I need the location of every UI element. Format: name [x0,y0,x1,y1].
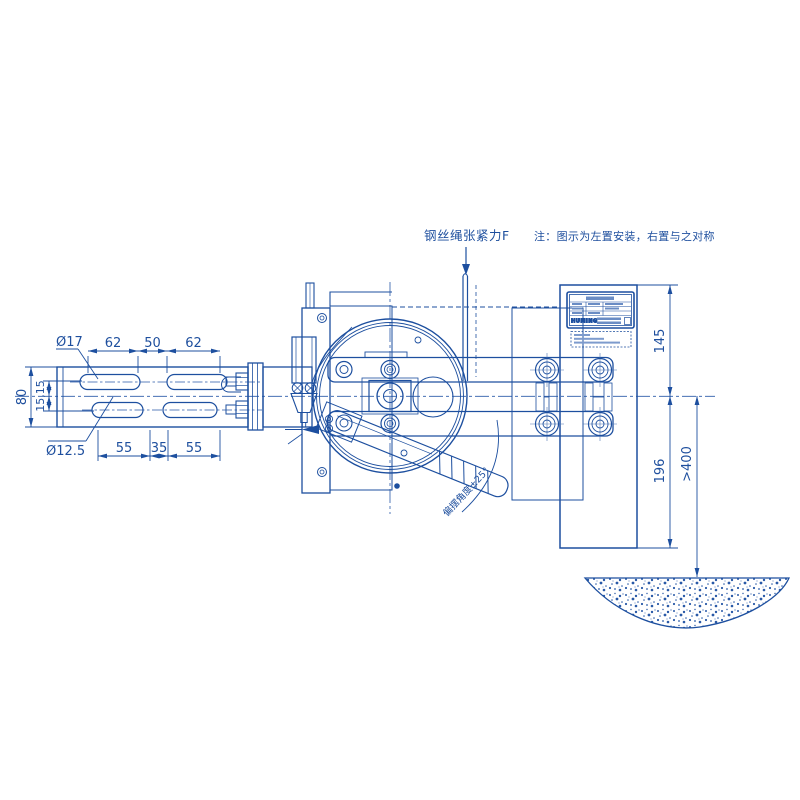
right-dimensions: 145 196 [637,285,678,548]
force-annotation: 钢丝绳张紧力F [424,228,510,275]
force-label: 钢丝绳张紧力F [424,228,510,243]
svg-text:55: 55 [186,441,203,456]
svg-text:145: 145 [653,329,668,354]
swivel-disc [313,282,467,514]
svg-text:196: 196 [653,459,668,484]
note-label: 注：图示为左置安装，右置与之对称 [534,229,715,243]
svg-text:Ø17: Ø17 [56,335,83,350]
svg-text:>400: >400 [680,446,695,482]
spec-box [571,332,631,348]
svg-text:62: 62 [105,336,122,351]
ground-hatch [585,578,789,628]
tension-pointer [291,337,317,427]
svg-text:35: 35 [151,441,168,456]
svg-text:50: 50 [144,336,161,351]
svg-text:Ø12.5: Ø12.5 [46,444,85,459]
svg-text:80: 80 [15,389,30,406]
note-annotation: 注：图示为左置安装，右置与之对称 [534,229,715,243]
left-dimensions: 62 50 62 55 35 55 80 15,15 [15,335,220,461]
drawing-page: 偏摆角度±25° HUMING [0,0,800,800]
svg-text:55: 55 [116,441,133,456]
clearance-dimension: >400 [680,396,699,577]
svg-text:15,15: 15,15 [34,380,47,412]
left-bracket-arm [57,367,262,427]
technical-drawing: 偏摆角度±25° HUMING [0,0,800,800]
brand-label: HUMING [571,319,598,325]
svg-text:62: 62 [185,336,202,351]
nameplate: HUMING [567,292,634,328]
